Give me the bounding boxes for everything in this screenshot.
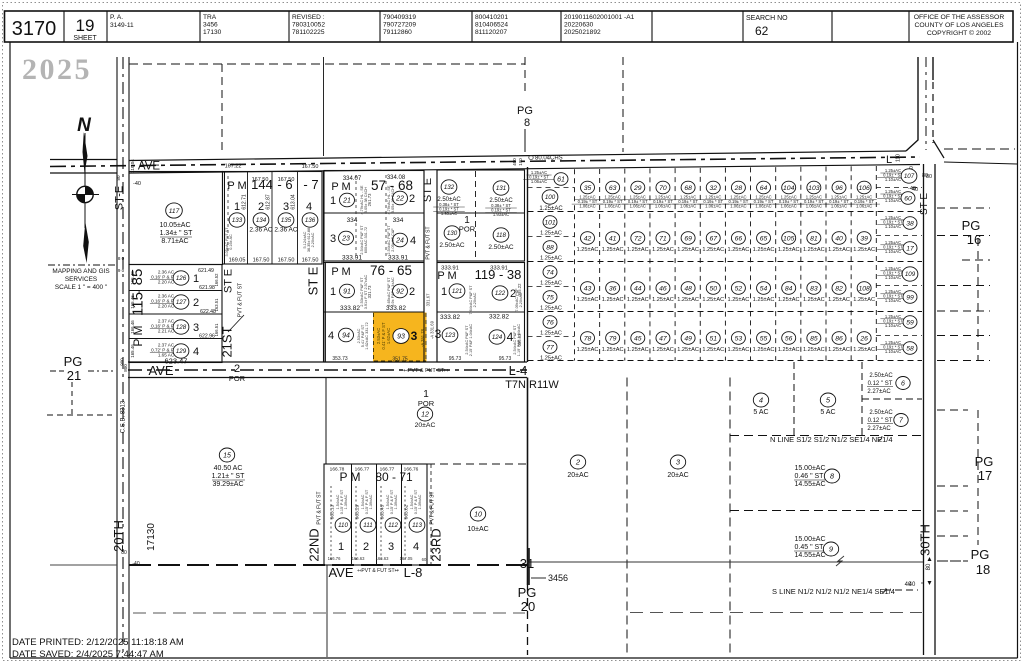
svg-text:2: 2 [258,201,264,213]
svg-text:94: 94 [342,333,350,340]
svg-text:80: 80 [926,174,932,180]
svg-text:1.62±AC 331.72: 1.62±AC 331.72 [365,322,369,349]
svg-text:2.20 AC: 2.20 AC [158,303,175,308]
svg-text:167.22: 167.22 [225,164,242,170]
svg-text:49: 49 [684,335,692,342]
svg-text:1.25±AC: 1.25±AC [627,347,649,353]
svg-text:123: 123 [445,332,456,339]
svg-text:69: 69 [684,235,692,242]
svg-text:106: 106 [858,185,870,192]
svg-text:40: 40 [905,582,912,588]
svg-text:↤PVT & FUT ST↦: ↤PVT & FUT ST↦ [357,568,399,574]
svg-text:103: 103 [808,185,820,192]
svg-text:1.25±AC: 1.25±AC [753,347,775,353]
svg-text:1.25±AC: 1.25±AC [577,247,599,253]
svg-text:1.25±AC: 1.25±AC [540,306,562,312]
svg-text:165.48: 165.48 [130,271,135,285]
svg-text:110.04: 110.04 [130,159,135,173]
svg-text:1.10±AC: 1.10±AC [885,275,901,280]
svg-text:2: 2 [409,286,415,298]
svg-text:333.82: 333.82 [440,314,460,321]
svg-text:68: 68 [684,185,692,192]
svg-text:77: 77 [546,344,554,351]
svg-text:1.25±AC: 1.25±AC [753,247,775,253]
svg-text:DATE SAVED: 2/4/2025 7:44:47 A: DATE SAVED: 2/4/2025 7:44:47 AM [12,649,164,660]
svg-text:1.25±AC: 1.25±AC [677,347,699,353]
svg-text:780310052: 780310052 [292,22,325,29]
svg-text:1.25±AC: 1.25±AC [803,297,825,303]
svg-text:19: 19 [76,16,95,35]
svg-text:136: 136 [305,217,316,224]
svg-text:790727209: 790727209 [383,22,416,29]
svg-text:663.13: 663.13 [330,504,336,519]
svg-text:- 7: - 7 [303,177,318,192]
svg-text:1.25±AC: 1.25±AC [803,247,825,253]
svg-text:COPYRIGHT © 2002: COPYRIGHT © 2002 [927,29,991,37]
svg-text:35: 35 [584,185,592,192]
svg-text:2025: 2025 [22,53,92,86]
svg-text:353.73: 353.73 [332,356,348,362]
svg-text:22ND: 22ND [307,528,322,561]
svg-text:167.50: 167.50 [278,258,295,264]
svg-text:22: 22 [395,196,404,203]
svg-text:1.25±AC: 1.25±AC [652,297,674,303]
svg-text:4: 4 [410,235,416,247]
svg-text:40: 40 [912,187,918,193]
svg-text:P M: P M [437,270,456,282]
svg-text:95.73: 95.73 [449,356,462,362]
svg-text:331.67: 331.67 [426,293,431,306]
svg-text:1.10±AC: 1.10±AC [885,349,901,354]
svg-text:55: 55 [760,335,768,342]
svg-text:70: 70 [659,185,667,192]
svg-text:1.06±AC: 1.06±AC [781,204,797,209]
svg-text:-40: -40 [132,561,139,567]
svg-text:2: 2 [193,297,199,309]
svg-text:1.06±AC: 1.06±AC [680,204,696,209]
svg-text:23: 23 [341,236,350,243]
svg-text:↤PVT & FUT ST↦: ↤PVT & FUT ST↦ [403,368,449,374]
svg-text:48: 48 [684,285,692,292]
svg-text:17130: 17130 [203,29,222,36]
svg-text:663.62: 663.62 [404,504,410,519]
svg-text:75: 75 [546,294,554,301]
svg-text:333.91: 333.91 [388,255,408,262]
svg-text:612.87: 612.87 [266,194,272,210]
svg-text:PG: PG [962,218,981,233]
svg-text:17: 17 [978,468,992,483]
svg-text:1.25±AC: 1.25±AC [853,347,875,353]
svg-text:1.25±AC: 1.25±AC [702,247,724,253]
svg-text:1.25±AC: 1.25±AC [677,247,699,253]
svg-text:1.25±AC: 1.25±AC [540,281,562,287]
svg-text:ST E: ST E [422,178,434,202]
svg-text:86: 86 [835,335,843,342]
svg-text:1.25±AC: 1.25±AC [539,206,563,212]
svg-text:107: 107 [904,173,915,180]
svg-text:12: 12 [421,412,429,419]
svg-text:2025021892: 2025021892 [564,29,601,36]
svg-text:1.25±AC: 1.25±AC [602,247,624,253]
svg-text:14.55±AC: 14.55±AC [794,481,825,488]
svg-text:38: 38 [906,220,914,227]
svg-text:1.25±AC: 1.25±AC [728,347,750,353]
svg-text:100: 100 [545,194,556,201]
svg-text:1.34± " ST: 1.34± " ST [160,230,194,237]
svg-text:1.10±AC: 1.10±AC [885,198,901,203]
svg-text:1.10±AC: 1.10±AC [885,177,901,182]
svg-text:800410201: 800410201 [475,14,508,21]
svg-text:41: 41 [609,235,617,242]
svg-text:663.45: 663.45 [380,504,386,519]
svg-text:0.46 " ST: 0.46 " ST [795,473,825,480]
svg-text:20±AC: 20±AC [667,472,688,479]
svg-text:46: 46 [659,285,667,292]
svg-text:810406524: 810406524 [475,22,508,29]
svg-text:PG: PG [971,547,990,562]
svg-text:134: 134 [256,217,267,224]
svg-text:T7N R11W: T7N R11W [505,379,559,391]
svg-text:1.06±AC: 1.06±AC [630,204,646,209]
svg-text:P. A.: P. A. [110,14,123,21]
svg-text:62: 62 [755,24,769,38]
svg-text:128: 128 [176,324,187,331]
svg-text:1.25±AC: 1.25±AC [753,297,775,303]
svg-text:64: 64 [760,185,768,192]
svg-text:40.50 AC: 40.50 AC [214,465,243,472]
svg-text:20±AC: 20±AC [415,422,436,429]
svg-text:4: 4 [306,201,312,213]
svg-text:1.39±AC: 1.39±AC [394,494,398,509]
svg-text:60: 60 [904,195,912,202]
svg-text:79: 79 [609,335,617,342]
svg-text:21: 21 [67,368,81,383]
svg-text:1.25±AC: 1.25±AC [540,231,562,237]
svg-text:1.25±AC: 1.25±AC [540,331,562,337]
svg-text:167.50: 167.50 [302,258,319,264]
svg-text:39.29±AC: 39.29±AC [212,481,243,488]
svg-text:167.50: 167.50 [252,177,269,183]
svg-text:1.25±AC: 1.25±AC [728,297,750,303]
svg-text:334: 334 [393,217,404,224]
svg-text:1.06±AC: 1.06±AC [531,179,547,184]
svg-text:1.39±AC: 1.39±AC [344,494,348,509]
svg-text:20: 20 [521,599,535,614]
svg-text:1: 1 [330,195,336,207]
svg-text:1.10±AC: 1.10±AC [885,224,901,229]
svg-text:83: 83 [810,285,818,292]
svg-text:51: 51 [709,335,717,342]
svg-text:8: 8 [524,117,530,129]
svg-text:2.36 AC: 2.36 AC [249,227,272,234]
svg-text:163.51: 163.51 [214,298,219,311]
svg-text:166.63: 166.63 [352,556,365,561]
svg-text:133: 133 [232,217,243,224]
svg-text:1.39±AC: 1.39±AC [418,494,422,509]
svg-text:117: 117 [169,208,180,215]
svg-text:2.50±AC: 2.50±AC [488,244,514,251]
svg-text:6: 6 [901,381,905,388]
svg-text:2.05±AC C&F: 2.05±AC C&F [391,228,395,252]
svg-text:109: 109 [905,271,916,278]
svg-text:18: 18 [976,562,990,577]
svg-text:613.04: 613.04 [291,194,297,210]
svg-text:600±AC 331.72: 600±AC 331.72 [364,227,368,253]
svg-text:333.91: 333.91 [441,266,459,272]
svg-text:1.25±AC: 1.25±AC [778,347,800,353]
svg-text:54: 54 [760,285,768,292]
svg-text:44: 44 [634,285,642,292]
svg-text:40: 40 [835,235,843,242]
svg-text:28: 28 [734,185,743,192]
svg-text:2.15' P&F 1.04±AC: 2.15' P&F 1.04±AC [469,324,473,357]
svg-text:PVT & FUT ST: PVT & FUT ST [426,226,432,259]
svg-text:4: 4 [413,541,419,553]
svg-text:53: 53 [735,335,743,342]
svg-text:PVT & FUT ST: PVT & FUT ST [238,282,244,317]
svg-text:169.05: 169.05 [229,258,246,264]
svg-text:COUNTY OF LOS ANGELES: COUNTY OF LOS ANGELES [914,22,1003,29]
svg-text:110: 110 [896,154,902,162]
svg-text:-40: -40 [133,181,141,187]
svg-text:1: 1 [193,273,199,285]
svg-text:2.36 AC: 2.36 AC [274,227,297,234]
svg-text:333.82: 333.82 [340,305,360,312]
svg-text:131: 131 [496,185,506,192]
svg-text:P M: P M [331,266,350,278]
svg-text:63: 63 [609,185,617,192]
svg-text:PG: PG [64,354,83,369]
svg-text:261.73: 261.73 [367,193,372,206]
svg-text:124: 124 [492,334,503,341]
svg-text:166.76: 166.76 [328,556,341,561]
svg-text:1.93±AC: 1.93±AC [441,211,457,216]
svg-text:190: 190 [518,158,523,166]
svg-text:PG: PG [975,454,994,469]
svg-text:2: 2 [409,193,415,205]
svg-text:32: 32 [709,185,717,192]
svg-text:2.20±AC: 2.20±AC [311,232,315,247]
svg-text:45: 45 [634,335,642,342]
svg-text:47: 47 [659,335,667,342]
svg-text:L-8: L-8 [404,565,423,580]
svg-text:1.25±AC: 1.25±AC [540,356,562,362]
svg-text:1.06±AC: 1.06±AC [705,204,721,209]
svg-text:1.93±AC: 1.93±AC [493,212,509,217]
svg-text:1.25±AC: 1.25±AC [853,297,875,303]
svg-text:10±AC: 10±AC [467,526,488,533]
svg-text:POR: POR [459,225,476,234]
svg-text:1.25±AC: 1.25±AC [828,247,850,253]
svg-text:3149-11: 3149-11 [110,22,134,29]
svg-text:76: 76 [546,319,554,326]
svg-text:59: 59 [906,319,914,326]
svg-text:8 0: 8 0 [118,256,125,261]
svg-text:L: L [886,154,892,166]
svg-text:N: N [77,115,92,136]
svg-text:SHEET: SHEET [73,35,97,42]
svg-text:P M: P M [331,181,350,193]
svg-text:1.25±AC: 1.25±AC [828,347,850,353]
svg-text:1.25±AC: 1.25±AC [627,247,649,253]
svg-text:3170: 3170 [12,18,57,40]
svg-text:79112860: 79112860 [383,29,412,36]
svg-text:3456: 3456 [203,22,218,29]
svg-text:80.04CHS: 80.04CHS [535,156,563,162]
svg-text:2.50±AC: 2.50±AC [869,410,893,416]
svg-text:65: 65 [760,235,768,242]
svg-text:96: 96 [835,185,843,192]
svg-text:31: 31 [520,556,534,571]
svg-text:1.25±AC: 1.25±AC [702,297,724,303]
svg-text:1.06±AC: 1.06±AC [579,204,595,209]
svg-text:1.25±AC: 1.25±AC [602,347,624,353]
svg-text:335.03: 335.03 [517,333,522,346]
svg-text:2.20 AC: 2.20 AC [158,279,175,284]
svg-text:126: 126 [176,275,187,282]
svg-text:3: 3 [411,329,418,343]
svg-text:1.25±AC: 1.25±AC [778,297,800,303]
svg-text:3: 3 [388,541,394,553]
svg-text:1.06±AC: 1.06±AC [831,204,847,209]
svg-text:4: 4 [193,346,199,358]
svg-text:101: 101 [544,219,556,226]
svg-text:167.50: 167.50 [302,164,319,170]
svg-text:165.46: 165.46 [130,295,135,309]
svg-text:1.39±AC: 1.39±AC [369,494,373,509]
svg-text:C.S.B. 8313: C.S.B. 8313 [121,400,127,433]
svg-text:129: 129 [176,348,187,355]
svg-text:165.46: 165.46 [130,344,135,358]
svg-text:ST E: ST E [306,266,321,295]
svg-text:36: 36 [609,285,617,292]
svg-text:2.21 AC: 2.21 AC [158,328,175,333]
svg-text:3.9± F&F 1.3±AC: 3.9± F&F 1.3±AC [391,277,395,307]
svg-text:76 - 65: 76 - 65 [370,263,412,278]
svg-text:122: 122 [495,290,506,297]
svg-text:135: 135 [281,217,292,224]
svg-text:1.25±AC: 1.25±AC [728,247,750,253]
svg-text:612.71: 612.71 [242,194,248,210]
svg-text:166.52: 166.52 [214,273,219,286]
svg-text:0.16± AC: 0.16± AC [229,234,233,250]
svg-text:811120207: 811120207 [475,29,507,36]
svg-text:0.12 " ST: 0.12 " ST [868,381,893,387]
svg-text:29: 29 [633,185,642,192]
svg-text:4: 4 [759,396,763,405]
svg-text:167.05: 167.05 [400,556,413,561]
svg-text:1.25±AC: 1.25±AC [853,247,875,253]
svg-text:REVISED :: REVISED : [292,14,325,21]
svg-text:16: 16 [967,232,981,247]
svg-text:1.10±AC: 1.10±AC [885,323,901,328]
svg-text:400: 400 [512,158,517,166]
svg-text:1: 1 [234,201,240,213]
svg-text:335.22: 335.22 [517,283,522,296]
svg-text:88: 88 [546,244,554,251]
svg-text:621.98: 621.98 [199,285,215,291]
svg-text:3: 3 [330,233,336,245]
svg-text:67: 67 [709,235,717,242]
svg-text:622.96: 622.96 [199,334,215,340]
svg-text:1.06±AC: 1.06±AC [655,204,671,209]
svg-text:333.91: 333.91 [490,266,508,272]
svg-text:2.50±AC: 2.50±AC [439,242,465,249]
svg-text:21ST: 21ST [220,326,235,357]
svg-text:105: 105 [783,235,795,242]
svg-text:5 AC: 5 AC [820,409,835,416]
svg-text:2: 2 [575,458,581,467]
svg-text:332.82: 332.82 [489,314,509,321]
svg-text:POR: POR [229,374,246,383]
svg-text:20220630: 20220630 [564,22,594,29]
svg-text:TRA: TRA [203,14,217,21]
svg-text:S LINE N1/2 N1/2 N1/2 NE1/4 SE: S LINE N1/2 N1/2 N1/2 NE1/4 SE1/4 [772,587,895,596]
svg-text:20±AC: 20±AC [567,472,588,479]
svg-text:50: 50 [709,285,717,292]
svg-text:17130: 17130 [146,523,157,551]
svg-text:93: 93 [397,334,405,341]
svg-text:80: 80 [926,563,932,570]
svg-text:1.25±AC: 1.25±AC [540,256,562,262]
svg-text:SEARCH NO: SEARCH NO [746,15,788,22]
svg-text:82: 82 [835,285,843,292]
svg-text:333.91: 333.91 [342,255,362,262]
svg-text:15.00±AC: 15.00±AC [794,536,825,543]
svg-text:39: 39 [860,235,868,242]
svg-text:2.27±AC: 2.27±AC [867,389,891,395]
svg-text:167.50: 167.50 [253,258,270,264]
svg-text:1.06±AC: 1.06±AC [605,204,621,209]
svg-text:42: 42 [584,235,592,242]
svg-text:30TH: 30TH [918,524,933,556]
svg-text:9 0: 9 0 [118,268,125,273]
svg-text:78: 78 [584,335,592,342]
svg-text:99: 99 [906,294,914,301]
svg-text:80 - 71: 80 - 71 [375,470,413,484]
svg-text:1.25±AC: 1.25±AC [702,347,724,353]
svg-text:84: 84 [785,285,793,292]
svg-text:331.73: 331.73 [367,285,372,298]
svg-text:56: 56 [785,335,793,342]
svg-text:14.55±AC: 14.55±AC [794,552,825,559]
svg-text:2.27±AC: 2.27±AC [867,426,891,432]
svg-text:800: 800 [123,364,128,372]
svg-text:AVE: AVE [138,161,160,173]
svg-text:SCALE 1 " = 400 ": SCALE 1 " = 400 " [55,284,107,291]
svg-text:3456: 3456 [548,573,568,583]
svg-text:80: 80 [121,550,127,556]
svg-text:0.12 " ST: 0.12 " ST [868,418,893,424]
svg-text:26: 26 [859,335,868,342]
svg-text:10.05±AC: 10.05±AC [159,222,190,229]
svg-text:0.45 " ST: 0.45 " ST [795,544,825,551]
svg-text:72: 72 [634,235,642,242]
svg-text:43: 43 [584,285,592,292]
svg-text:1.25±AC: 1.25±AC [577,347,599,353]
svg-text:127: 127 [176,299,187,306]
svg-text:AVE: AVE [328,565,353,580]
svg-text:81: 81 [810,235,818,242]
svg-text:790409319: 790409319 [383,14,416,21]
svg-text:OFFICE OF THE ASSESSOR: OFFICE OF THE ASSESSOR [914,14,1005,21]
svg-text:132: 132 [444,184,455,191]
svg-text:ST-E: ST-E [113,186,125,210]
svg-text:58: 58 [906,345,914,352]
svg-text:52: 52 [735,285,743,292]
svg-text:SERVICES: SERVICES [65,276,97,283]
svg-text:21: 21 [342,198,351,205]
